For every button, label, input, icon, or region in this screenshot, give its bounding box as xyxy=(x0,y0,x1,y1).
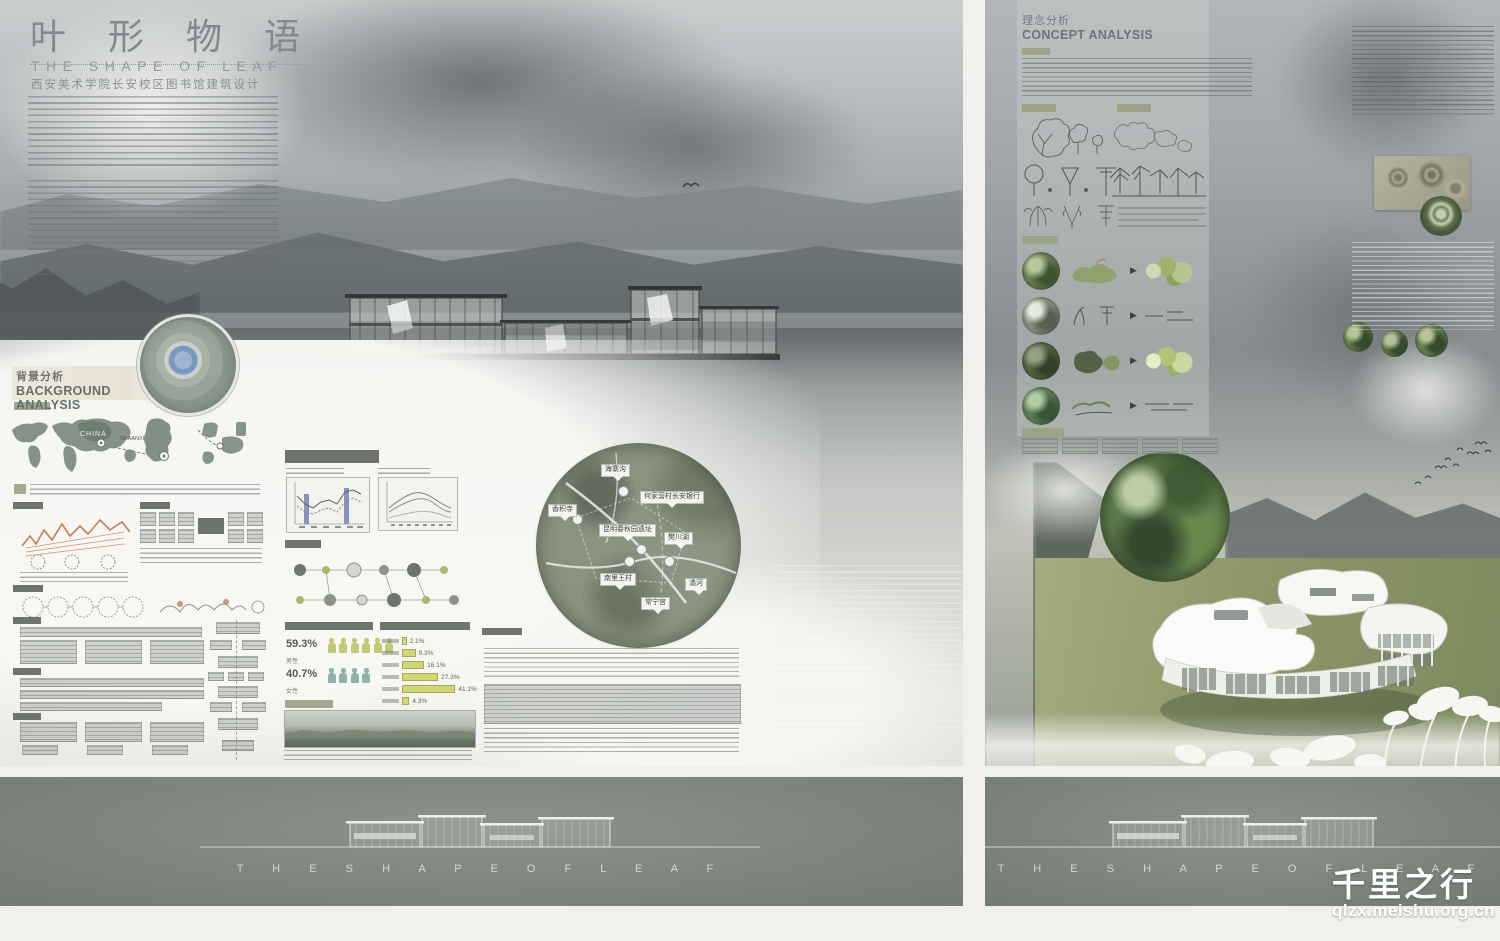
evolution-row: ▶ xyxy=(1022,338,1214,383)
sketch-caption xyxy=(20,572,128,582)
network-dot-diagram xyxy=(286,556,471,614)
thumbnail-strip xyxy=(1022,438,1218,454)
evolution-row: ▶ xyxy=(1022,293,1214,338)
text-box xyxy=(20,640,77,664)
section-label-concept: 理念分析 CONCEPT ANALYSIS xyxy=(1022,12,1153,42)
poster-title-en: THE SHAPE OF LEAF xyxy=(31,58,283,74)
thumb xyxy=(1022,438,1058,454)
text-box xyxy=(150,722,204,742)
watermark-url: qlzx.meishu.org.cn xyxy=(1332,901,1495,921)
bird-flock-icon xyxy=(1405,438,1495,490)
site-callout: 潏河 xyxy=(685,578,707,591)
evolution-sketch xyxy=(1066,299,1124,333)
site-callout: 昆明春秋园遗址 xyxy=(599,524,656,537)
rose-photo xyxy=(1420,196,1462,236)
analysis-tag-left xyxy=(1022,104,1056,112)
concept-label-cn: 理念分析 xyxy=(1022,12,1153,28)
age-bar-chart: 2.1% 9.3% 16.1% 27.3% 41.1% 4.3% xyxy=(382,636,477,708)
maps-caption xyxy=(30,484,260,496)
map-label-china: CHINA xyxy=(80,431,107,438)
subsection-tag xyxy=(13,502,43,509)
subsection-tag xyxy=(13,713,41,720)
thumbs-tag xyxy=(1022,428,1064,436)
person-icon xyxy=(362,638,370,653)
evolution-photo-circle xyxy=(1022,387,1060,425)
english-paragraph xyxy=(772,565,962,735)
evolution-photo-circle xyxy=(1022,342,1060,380)
person-icon xyxy=(339,668,347,683)
arrow-icon: ▶ xyxy=(1130,355,1137,366)
caption-bullet xyxy=(14,484,26,494)
thumb xyxy=(1102,438,1138,454)
person-icon xyxy=(362,668,370,683)
location-maps: CHINA SHAANXI XI'AN xyxy=(8,416,270,482)
flower-silhouettes xyxy=(1170,630,1500,766)
site-marker xyxy=(624,556,635,567)
bar-label xyxy=(382,663,399,667)
flowchart-box xyxy=(228,672,244,681)
left-panel: 叶 形 物 语 THE SHAPE OF LEAF 西安美术学院长安校区图书馆建… xyxy=(0,0,963,766)
arrow-icon: ▶ xyxy=(1130,310,1137,321)
person-icon xyxy=(374,638,382,653)
text-bar xyxy=(20,690,204,699)
flowchart-box xyxy=(210,702,232,712)
gender-female-row: 40.7% 女性 xyxy=(286,668,374,695)
bar-label xyxy=(382,699,399,703)
concept-text-en xyxy=(1352,242,1494,330)
analysis-tag-right xyxy=(1117,104,1151,112)
text-bar xyxy=(20,678,204,687)
person-icon xyxy=(328,638,336,653)
bar-value: 41.1% xyxy=(458,686,476,693)
bar-value: 4.3% xyxy=(412,698,427,705)
site-panorama-photo xyxy=(284,710,476,748)
evolution-sketch xyxy=(1066,254,1124,288)
footer-strip-left: T H E S H A P E O F L E A F xyxy=(0,777,963,906)
flowchart-box xyxy=(242,640,266,650)
evolution-mass-cluster xyxy=(1143,256,1195,286)
flowchart-box xyxy=(218,656,258,668)
bar xyxy=(402,637,407,645)
site-callout: 香积寺 xyxy=(548,504,577,517)
bar-row: 16.1% xyxy=(382,660,477,670)
evolution-photo-circle xyxy=(1022,297,1060,335)
intro-paragraph-2 xyxy=(28,180,278,276)
sketch-icons-row xyxy=(484,648,739,678)
flowchart-box xyxy=(216,622,260,634)
bar-row: 41.1% xyxy=(382,684,477,694)
text-bar xyxy=(20,627,202,637)
concept-label-en: CONCEPT ANALYSIS xyxy=(1022,28,1153,42)
bar-label xyxy=(382,639,399,643)
text-box xyxy=(150,640,204,664)
concept-intro-lines xyxy=(1022,58,1252,98)
bar-label xyxy=(382,675,399,679)
bar-row: 4.3% xyxy=(382,696,477,706)
map-label-shaanxi: SHAANXI xyxy=(120,436,145,442)
bird-icon xyxy=(682,180,700,190)
temperature-chart xyxy=(286,477,370,533)
bar-label xyxy=(382,687,399,691)
evolution-line-cluster xyxy=(1143,396,1195,416)
subsection-tag xyxy=(13,668,41,675)
elevation-drawing xyxy=(963,809,1500,855)
thumb xyxy=(1142,438,1178,454)
evolution-photo-circle xyxy=(1022,252,1060,290)
flowchart-box xyxy=(218,686,258,698)
evolution-circles-row xyxy=(20,594,265,620)
right-panel: 理念分析 CONCEPT ANALYSIS xyxy=(985,0,1500,766)
icon-grid-left xyxy=(140,512,194,543)
text-box xyxy=(85,722,142,742)
site-marker xyxy=(636,544,647,555)
intro-paragraph-1 xyxy=(28,96,278,170)
subsection-tag xyxy=(285,540,321,548)
city-map-inset xyxy=(137,314,239,416)
caption-lines xyxy=(484,728,739,754)
mini-box xyxy=(152,745,188,755)
evolution-tag xyxy=(1022,236,1058,244)
male-percentage: 59.3% xyxy=(286,638,317,650)
site-callout: 樊川湖 xyxy=(664,532,693,545)
evolution-sketch xyxy=(1066,389,1124,423)
poster-subtitle: 西安美术学院长安校区图书馆建筑设计 xyxy=(31,76,261,92)
panorama-hills xyxy=(285,727,475,737)
thumb xyxy=(1062,438,1098,454)
site-watermark: 千里之行 qlzx.meishu.org.cn xyxy=(1332,868,1495,921)
flowchart-box xyxy=(222,740,254,751)
concept-text-cn xyxy=(1352,26,1494,118)
photo-tag xyxy=(285,700,333,708)
map-label-xian: XI'AN xyxy=(152,465,171,472)
mini-box xyxy=(22,745,58,755)
wide-text-block xyxy=(484,684,741,724)
tree-analysis-sketches xyxy=(1020,114,1212,232)
evolution-mass-cluster xyxy=(1143,346,1195,376)
chart-caption xyxy=(378,468,430,474)
site-marker xyxy=(664,556,675,567)
evolution-sketch xyxy=(1066,344,1124,378)
site-marker xyxy=(618,486,629,497)
text-box xyxy=(85,640,142,664)
subsection-tag xyxy=(13,617,41,624)
city-skyline-sketch xyxy=(20,512,130,570)
mini-box xyxy=(87,745,123,755)
poster-title-cn: 叶 形 物 语 xyxy=(30,8,316,65)
icon-grid-center-box xyxy=(198,518,224,534)
poster-scan: 叶 形 物 语 THE SHAPE OF LEAF 西安美术学院长安校区图书馆建… xyxy=(0,0,1500,941)
bar-value: 9.3% xyxy=(419,650,434,657)
site-callout: 南里王村 xyxy=(600,573,636,586)
small-tag xyxy=(1022,48,1050,55)
bar xyxy=(402,673,438,681)
arrow-icon: ▶ xyxy=(1130,400,1137,411)
chart-caption xyxy=(286,468,344,474)
female-percentage: 40.7% xyxy=(286,668,317,680)
evolution-row: ▶ xyxy=(1022,248,1214,293)
site-callout: 常宁宫 xyxy=(641,597,670,610)
watermark-brand: 千里之行 xyxy=(1332,868,1495,901)
text-box xyxy=(20,722,77,742)
bar xyxy=(402,661,424,669)
green-thumb-circle xyxy=(1381,330,1408,357)
icon-grid-right xyxy=(228,512,263,543)
evolution-diagram: ▶ ▶ xyxy=(1022,248,1214,428)
thumb xyxy=(1182,438,1218,454)
person-icon xyxy=(351,638,359,653)
person-icon xyxy=(328,668,336,683)
bar-value: 16.1% xyxy=(427,662,445,669)
gender-male-row: 59.3% 男性 xyxy=(286,638,397,665)
evolution-row: ▶ xyxy=(1022,383,1214,428)
panorama-caption xyxy=(284,750,472,760)
subsection-tag xyxy=(13,585,43,592)
bar-row: 2.1% xyxy=(382,636,477,646)
bar-row: 27.3% xyxy=(382,672,477,682)
person-icon xyxy=(339,638,347,653)
site-callout: 海寨沟 xyxy=(601,464,630,477)
climate-header-tag xyxy=(285,450,379,463)
survey-tag-right xyxy=(380,622,470,630)
bar-row: 9.3% xyxy=(382,648,477,658)
survey-tag-left xyxy=(285,622,373,630)
bar-label xyxy=(382,651,399,655)
subsection-tag xyxy=(482,628,522,635)
arrow-icon: ▶ xyxy=(1130,265,1137,276)
elevation-drawing xyxy=(200,809,760,855)
flowchart-box xyxy=(210,640,232,650)
leaf-forest-circle xyxy=(1100,452,1230,582)
bar xyxy=(402,649,416,657)
flowchart-box xyxy=(248,672,264,681)
site-callout: 何家营村长安银行 xyxy=(640,491,704,504)
bar xyxy=(402,697,409,705)
flowchart-box xyxy=(208,672,224,681)
evolution-line-cluster xyxy=(1143,306,1195,326)
bar xyxy=(402,685,455,693)
person-icon xyxy=(351,668,359,683)
flowchart-box xyxy=(218,718,258,730)
rainfall-chart xyxy=(378,477,458,531)
icon-grid-caption xyxy=(140,548,262,566)
bar-value: 2.1% xyxy=(410,638,425,645)
strip-title: T H E S H A P E O F L E A F xyxy=(0,863,963,875)
flowchart-box xyxy=(242,702,266,712)
bar-value: 27.3% xyxy=(441,674,459,681)
subsection-tag xyxy=(140,502,170,509)
text-bar xyxy=(20,702,162,711)
